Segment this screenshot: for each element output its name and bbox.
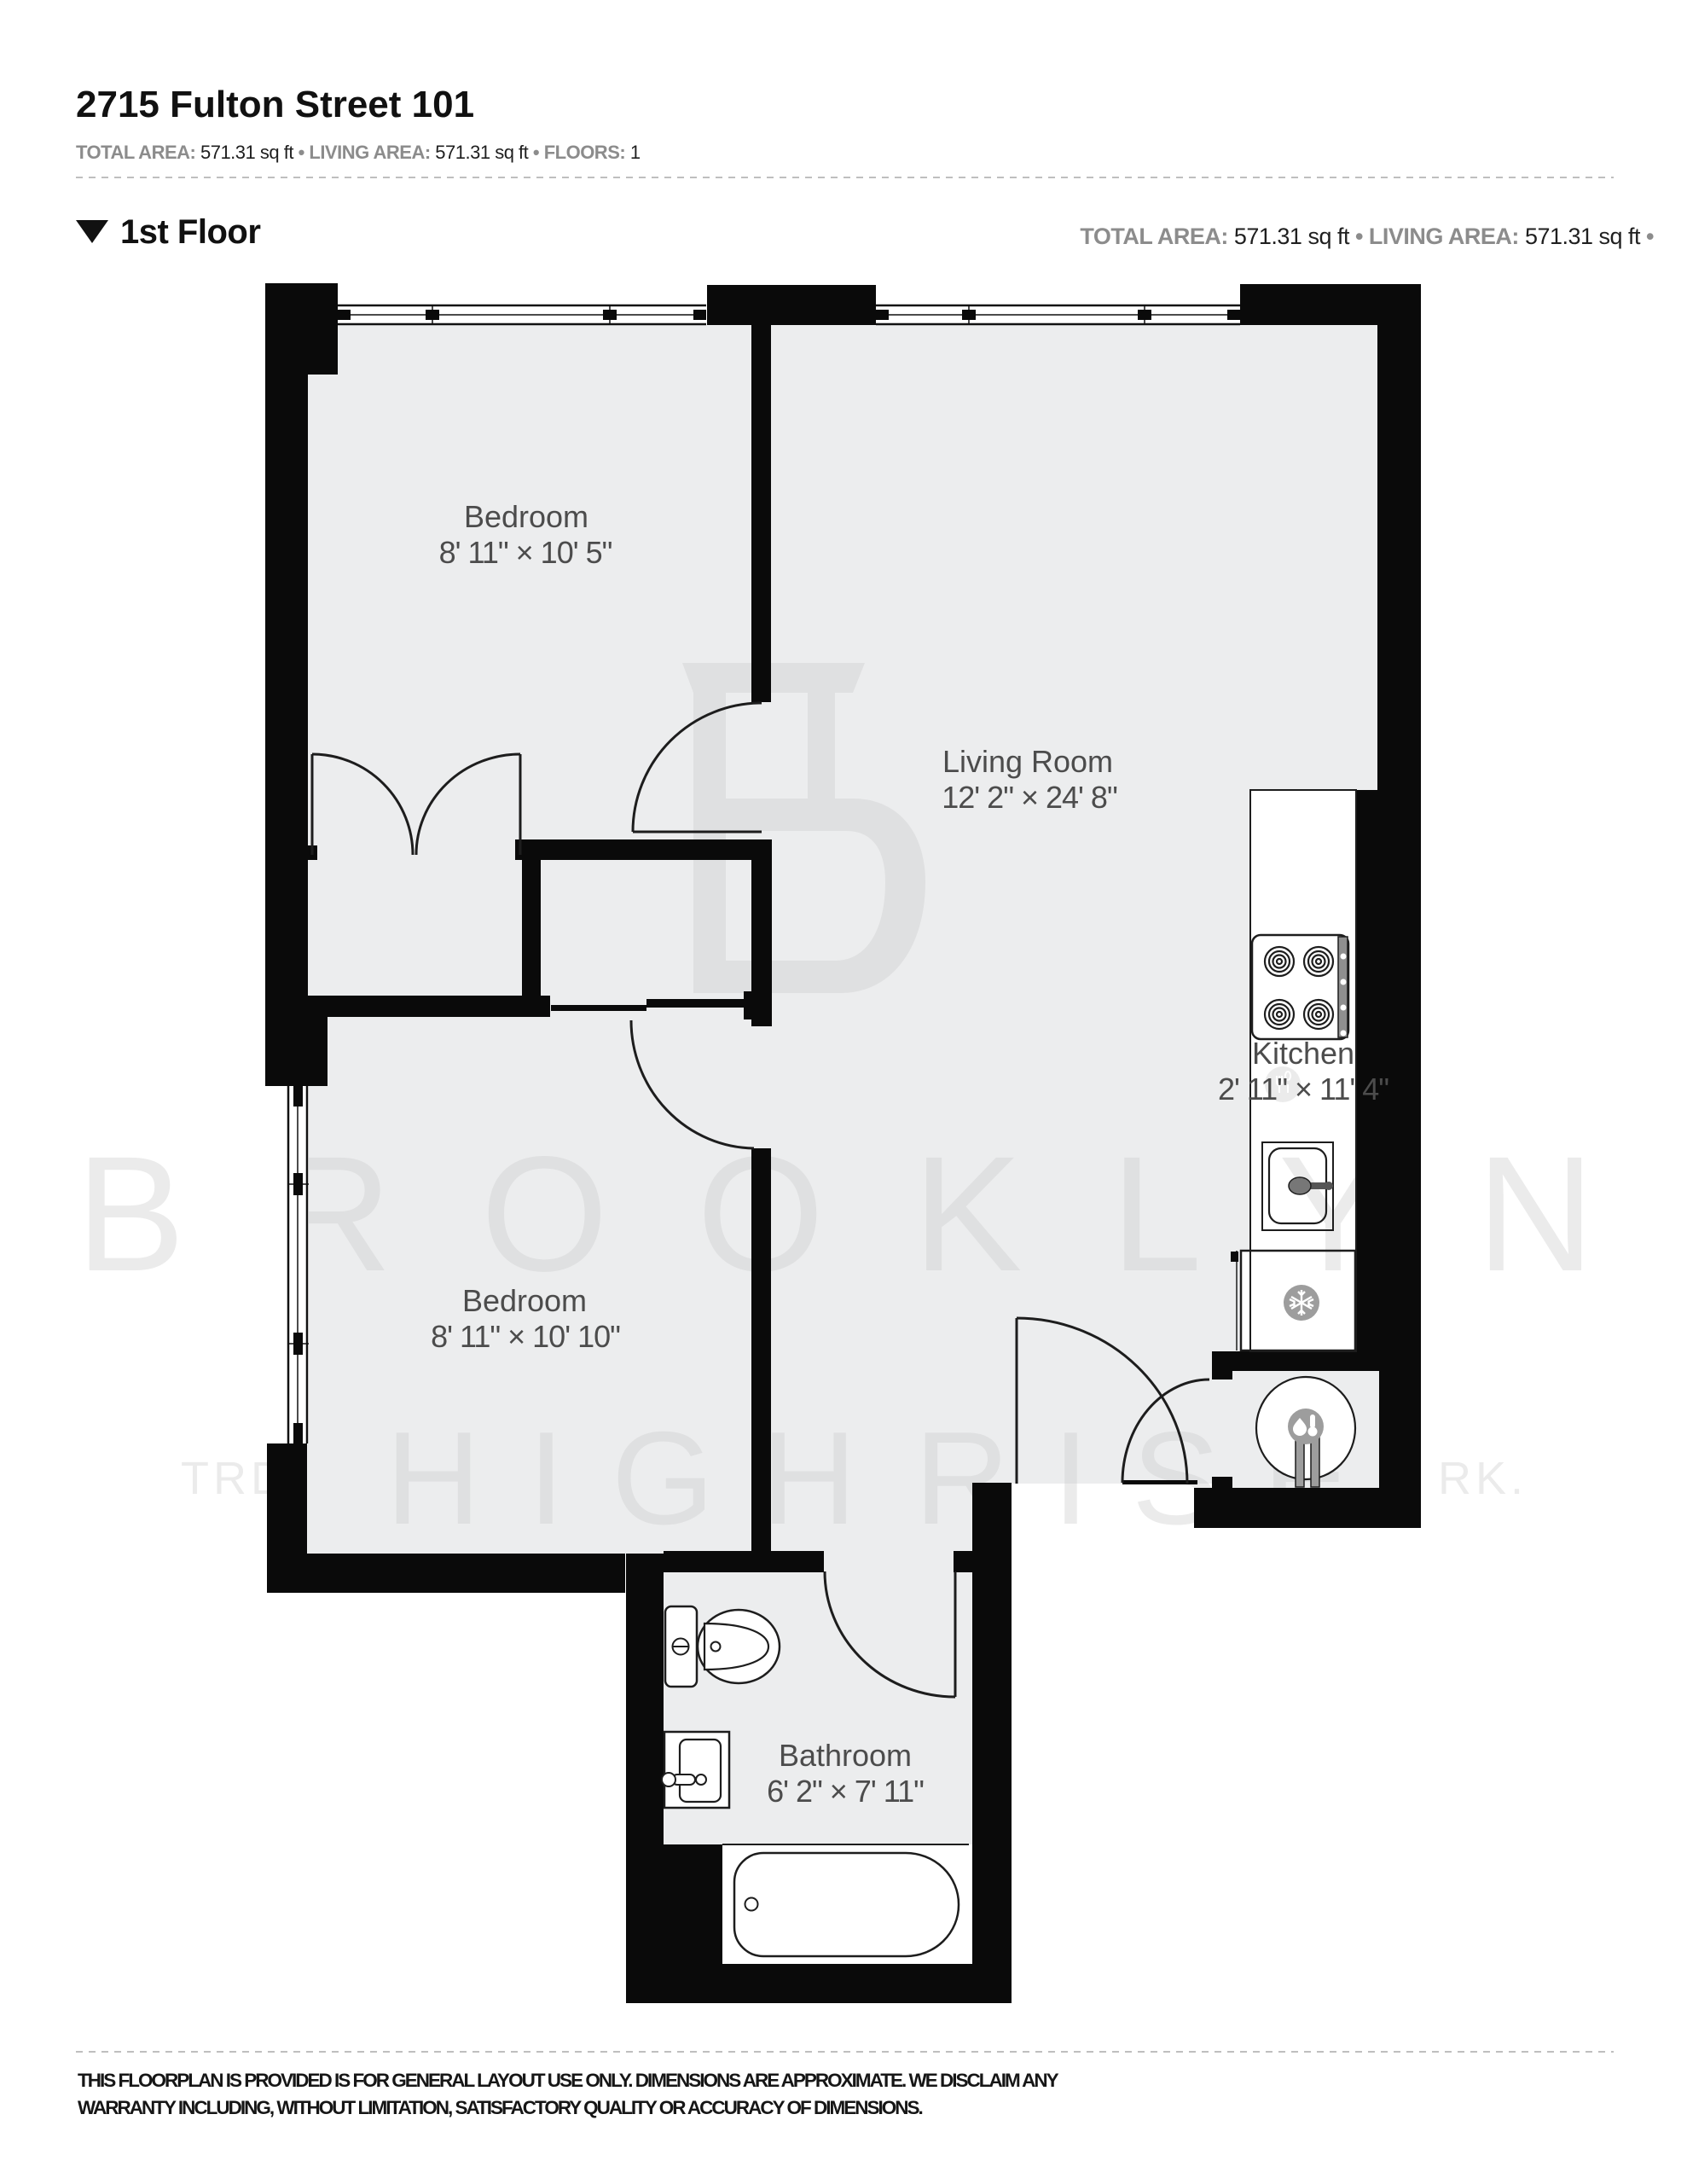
svg-text:Bedroom: Bedroom bbox=[462, 1283, 587, 1318]
svg-text:Bathroom: Bathroom bbox=[779, 1738, 912, 1773]
svg-text:Living Room: Living Room bbox=[942, 744, 1113, 779]
svg-text:WARRANTY INCLUDING, WITHOUT LI: WARRANTY INCLUDING, WITHOUT LIMITATION, … bbox=[78, 2097, 922, 2118]
svg-text:Kitchen: Kitchen bbox=[1252, 1036, 1354, 1071]
svg-text:2715 Fulton Street 101: 2715 Fulton Street 101 bbox=[76, 84, 474, 125]
svg-text:RK.: RK. bbox=[1438, 1453, 1528, 1504]
svg-text:6' 2" × 7' 11": 6' 2" × 7' 11" bbox=[767, 1774, 924, 1809]
svg-text:8' 11" × 10' 10": 8' 11" × 10' 10" bbox=[431, 1319, 620, 1354]
svg-text:BROOKLYN: BROOKLYN bbox=[76, 1122, 1684, 1305]
svg-text:HIGH: HIGH bbox=[386, 1404, 904, 1552]
svg-text:TOTAL AREA: 571.31 sq ft • LIV: TOTAL AREA: 571.31 sq ft • LIVING AREA: … bbox=[1080, 224, 1654, 249]
svg-text:12' 2" × 24' 8": 12' 2" × 24' 8" bbox=[942, 780, 1117, 815]
svg-text:2' 11" × 11' 4": 2' 11" × 11' 4" bbox=[1218, 1072, 1388, 1107]
svg-text:THIS FLOORPLAN IS PROVIDED IS: THIS FLOORPLAN IS PROVIDED IS FOR GENERA… bbox=[78, 2070, 1059, 2091]
svg-text:8' 11" × 10' 5": 8' 11" × 10' 5" bbox=[439, 535, 612, 570]
svg-text:TOTAL AREA: 571.31 sq ft • LIV: TOTAL AREA: 571.31 sq ft • LIVING AREA: … bbox=[76, 142, 641, 163]
svg-text:1st Floor: 1st Floor bbox=[120, 213, 260, 251]
svg-text:Bedroom: Bedroom bbox=[464, 499, 588, 534]
